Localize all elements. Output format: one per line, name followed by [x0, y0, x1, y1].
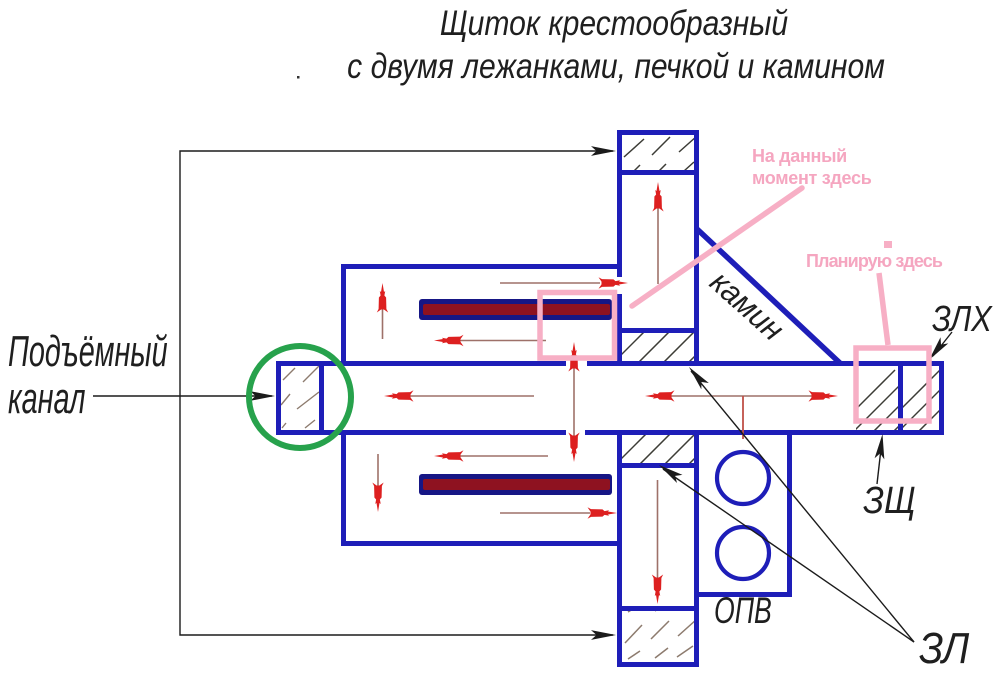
svg-text:канал: канал	[8, 373, 85, 423]
svg-text:Подъёмный: Подъёмный	[8, 326, 168, 376]
svg-text:На данный: На данный	[752, 146, 847, 166]
svg-text:ОПВ: ОПВ	[714, 590, 772, 631]
svg-text:с двумя лежанками, печкой и ка: с двумя лежанками, печкой и камином	[347, 46, 885, 86]
svg-text:момент здесь: момент здесь	[752, 168, 872, 188]
svg-text:Щиток крестообразный: Щиток крестообразный	[440, 3, 788, 43]
svg-text:Планирую здесь: Планирую здесь	[806, 251, 943, 271]
svg-text:ЗЛХ: ЗЛХ	[932, 300, 993, 340]
svg-text:ЗЛ: ЗЛ	[919, 623, 969, 672]
svg-text:ЗЩ: ЗЩ	[863, 478, 916, 521]
